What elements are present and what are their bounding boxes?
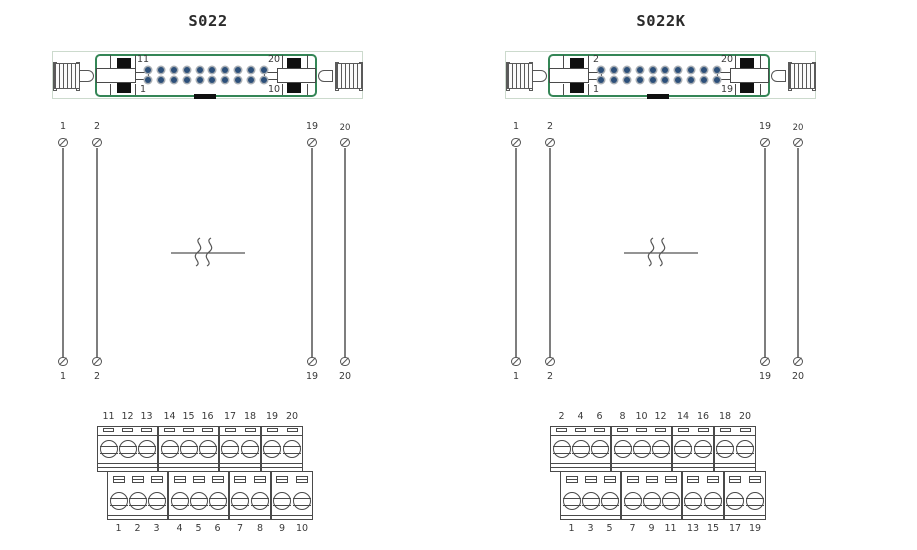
strain-relief [789,63,815,89]
cable-plug-left [532,70,547,82]
wire-entry-slot [740,428,751,433]
wire-top-label: 19 [752,121,778,133]
wire-entry-slot [594,428,605,433]
block-band-line [612,463,671,464]
connector-pin-label-top-right: 20 [718,54,736,65]
connector-pin-label-top-left: 2 [587,54,605,65]
wire-top-label: 20 [785,122,811,134]
block-separator-line [612,435,671,436]
terminal-number-label: 13 [683,523,703,535]
wire-entry-slot [566,476,578,483]
terminal-number-label: 19 [745,523,765,535]
pin-dot [701,67,707,73]
screw-terminal [591,440,609,458]
connector-pin-label-bottom-right: 19 [718,84,736,95]
screw-terminal [662,492,680,510]
wire-bottom-label: 19 [752,371,778,383]
block-band-line [683,515,723,516]
wire-terminal-top [545,138,555,148]
terminal-number-label: 10 [632,411,652,423]
terminal-number-label: 8 [613,411,633,423]
wiring-diagram-canvas: S022111201011221919202011121314151617181… [0,0,917,550]
pin-dot [650,67,656,73]
divider-tick [760,55,761,68]
screw-terminal [643,492,661,510]
wire-terminal-top [793,138,803,148]
wire-entry-slot [687,476,699,483]
terminal-number-label: 14 [673,411,693,423]
block-band-line [551,467,610,468]
terminal-number-label: 17 [725,523,745,535]
terminal-number-label: 4 [571,411,591,423]
polarization-key [740,58,754,68]
divider-tick [760,84,761,96]
screw-terminal [652,440,670,458]
screw-terminal [582,492,600,510]
wire-entry-slot [720,428,731,433]
wire-entry-slot [665,476,677,483]
pin-dot [624,67,630,73]
wire-terminal-bottom [545,357,555,367]
wire-line [764,148,766,357]
wire-line [515,148,517,357]
cable-plug-right [771,70,786,82]
block-separator-line [673,435,713,436]
wire-entry-slot [729,476,741,483]
wire-terminal-bottom [760,357,770,367]
terminal-number-label: 16 [693,411,713,423]
block-separator-line [715,435,755,436]
terminal-number-label: 15 [703,523,723,535]
pin-dot [688,67,694,73]
divider-tick [563,84,564,96]
connector-latch-left [549,68,589,84]
screw-terminal [684,492,702,510]
polarization-key [740,83,754,93]
terminal-number-label: 11 [661,523,681,535]
diagram-title: S022K [561,12,761,30]
strain-relief [507,63,533,89]
polarization-key [570,83,584,93]
wire-line [797,148,799,357]
screw-terminal [633,440,651,458]
terminal-number-label: 12 [651,411,671,423]
terminal-number-label: 1 [562,523,582,535]
wire-terminal-top [511,138,521,148]
block-band-line [715,463,755,464]
wire-entry-slot [575,428,586,433]
terminal-number-label: 6 [590,411,610,423]
connector-pin-label-bottom-left: 1 [587,84,605,95]
terminal-number-label: 18 [715,411,735,423]
block-band-line [561,515,620,516]
block-separator-line [551,435,610,436]
divider-tick [563,55,564,68]
screw-terminal [694,440,712,458]
wire-terminal-top [760,138,770,148]
wire-terminal-bottom [793,357,803,367]
pin-dot [637,67,643,73]
cable-break-icon [621,235,701,271]
screw-terminal [716,440,734,458]
pin-dot [637,77,643,83]
wire-entry-slot [749,476,761,483]
wire-entry-slot [636,428,647,433]
wire-bottom-label: 1 [503,371,529,383]
block-band-line [551,463,610,464]
wire-line [549,148,551,357]
terminal-number-label: 3 [581,523,601,535]
pin-dot [701,77,707,83]
wire-entry-slot [556,428,567,433]
screw-terminal [674,440,692,458]
screw-terminal [746,492,764,510]
wire-entry-slot [707,476,719,483]
screw-terminal [726,492,744,510]
cable-break-svg [621,235,701,271]
wire-terminal-bottom [511,357,521,367]
wire-entry-slot [698,428,709,433]
screw-terminal [704,492,722,510]
wire-bottom-label: 2 [537,371,563,383]
wire-entry-slot [655,428,666,433]
screw-terminal [601,492,619,510]
pin-dot [650,77,656,83]
block-band-line [673,463,713,464]
wire-top-label: 2 [537,121,563,133]
wire-entry-slot [604,476,616,483]
wire-entry-slot [678,428,689,433]
pin-dot [714,67,720,73]
polarization-key [570,58,584,68]
block-band-line [612,467,671,468]
terminal-number-label: 9 [642,523,662,535]
terminal-number-label: 5 [600,523,620,535]
block-band-line [725,515,765,516]
wire-entry-slot [627,476,639,483]
block-band-line [622,515,681,516]
connector-latch-right [730,68,769,84]
wire-entry-slot [646,476,658,483]
terminal-number-label: 7 [623,523,643,535]
screw-terminal [572,440,590,458]
block-band-line [673,467,713,468]
wire-entry-slot [585,476,597,483]
block-band-line [715,467,755,468]
wire-entry-slot [617,428,628,433]
pin-dot [714,77,720,83]
screw-terminal [736,440,754,458]
screw-terminal [563,492,581,510]
screw-terminal [614,440,632,458]
terminal-number-label: 20 [735,411,755,423]
wire-top-label: 1 [503,121,529,133]
screw-terminal [553,440,571,458]
wire-bottom-label: 20 [785,371,811,383]
keying-notch [647,94,670,99]
diagram-s022k: S022K21201911221919202024681012141618201… [0,0,917,550]
terminal-number-label: 2 [552,411,572,423]
screw-terminal [624,492,642,510]
